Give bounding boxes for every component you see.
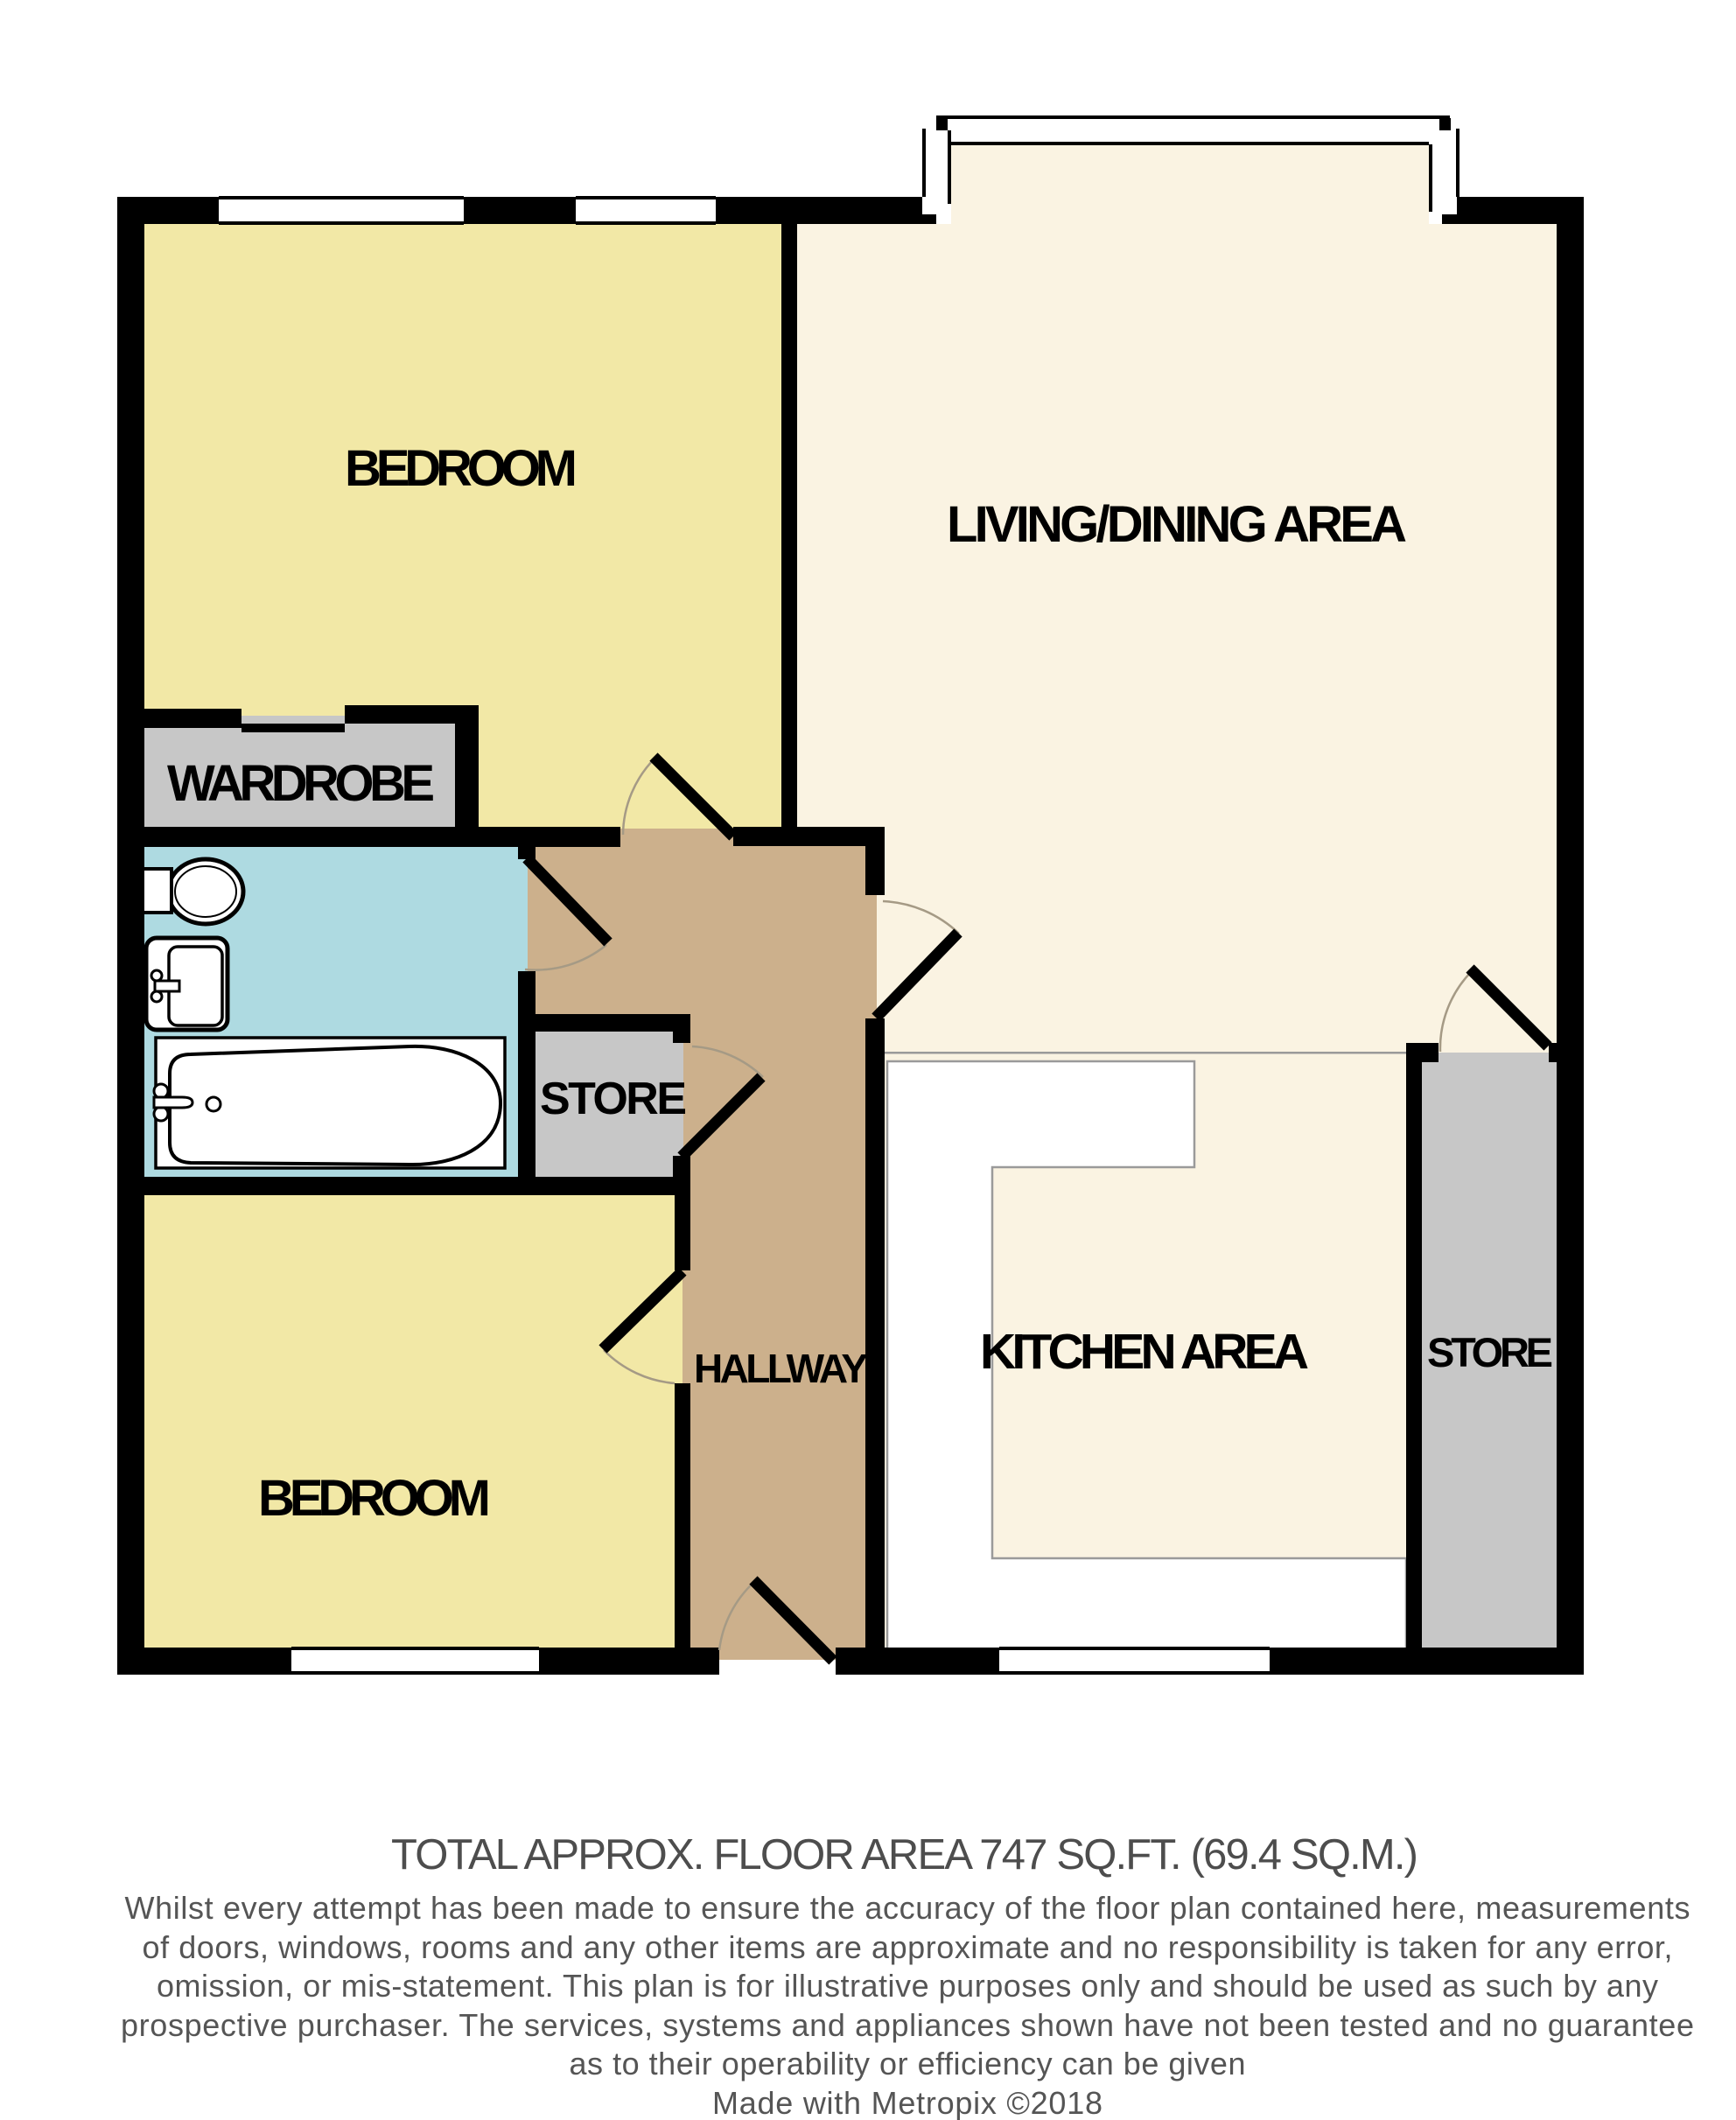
svg-text:omission, or mis-statement. Th: omission, or mis-statement. This plan is… [157,1968,1658,2004]
svg-text:Whilst every attempt has been: Whilst every attempt has been made to en… [125,1890,1690,1926]
svg-text:TOTAL APPROX. FLOOR AREA 747 S: TOTAL APPROX. FLOOR AREA 747 SQ.FT. (69.… [391,1831,1418,1879]
svg-text:STORE: STORE [1427,1329,1553,1375]
svg-text:Made with Metropix ©2018: Made with Metropix ©2018 [712,2085,1102,2120]
svg-text:HALLWAY: HALLWAY [694,1346,868,1391]
svg-text:as to their operability or eff: as to their operability or efficiency ca… [570,2046,1246,2082]
svg-text:WARDROBE: WARDROBE [167,755,435,812]
svg-text:LIVING/DINING AREA: LIVING/DINING AREA [947,496,1407,553]
svg-text:BEDROOM: BEDROOM [258,1470,491,1527]
svg-text:KITCHEN AREA: KITCHEN AREA [980,1324,1309,1380]
svg-text:prospective purchaser. The ser: prospective purchaser. The services, sys… [121,2007,1694,2043]
svg-text:STORE: STORE [540,1074,687,1124]
svg-text:BEDROOM: BEDROOM [345,440,577,497]
svg-text:of doors, windows, rooms and a: of doors, windows, rooms and any other i… [143,1929,1673,1965]
